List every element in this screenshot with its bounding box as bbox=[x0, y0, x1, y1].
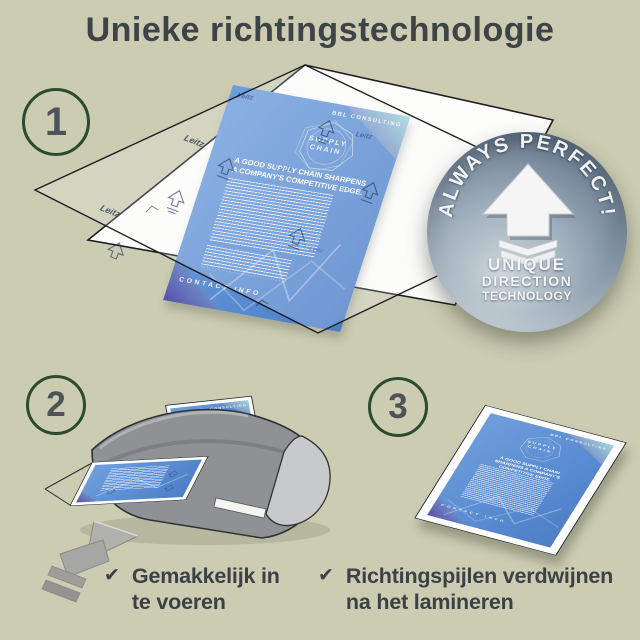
checklist-item-text: Richtingspijlen verdwijnen na het lamine… bbox=[346, 563, 613, 615]
checklist-item-easy-feed: ✔ Gemakkelijk in te voeren bbox=[104, 563, 280, 615]
product-infographic: Unieke richtingstechnologie BBL CONSULTI… bbox=[0, 0, 640, 640]
step-2-label: 2 bbox=[46, 385, 65, 425]
checklist-item-arrows-disappear: ✔ Richtingspijlen verdwijnen na het lami… bbox=[318, 563, 613, 615]
checklist-line: Richtingspijlen verdwijnen bbox=[346, 563, 613, 589]
checklist-line: na het lamineren bbox=[346, 589, 613, 615]
checklist-line: Gemakkelijk in bbox=[132, 563, 280, 589]
step-3-number: 3 bbox=[368, 377, 428, 437]
check-icon: ✔ bbox=[104, 564, 120, 587]
check-icon: ✔ bbox=[318, 564, 334, 587]
step-3-label: 3 bbox=[388, 387, 407, 427]
checklist-line: te voeren bbox=[132, 589, 280, 615]
step-2-number: 2 bbox=[26, 375, 86, 435]
checklist-item-text: Gemakkelijk in te voeren bbox=[132, 563, 280, 615]
